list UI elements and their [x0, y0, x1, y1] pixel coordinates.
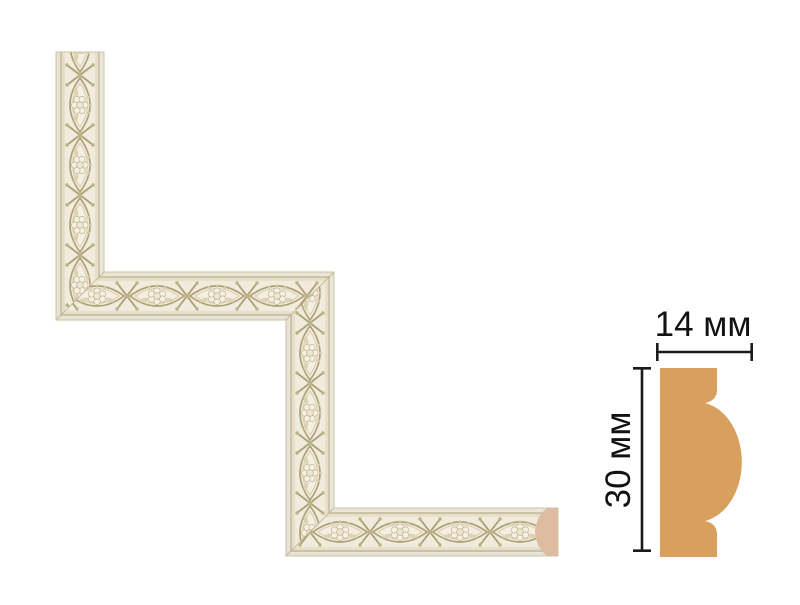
- width-dimension-label: 14 мм: [650, 306, 756, 344]
- profile-diagram: [633, 343, 753, 557]
- molding-strip-horizontal-upper: [56, 272, 334, 320]
- product-image: [0, 0, 800, 605]
- page: 14 мм 30 мм: [0, 0, 800, 605]
- molding-strip-vertical-middle: [286, 272, 334, 556]
- height-dimension-label: 30 мм: [600, 399, 638, 521]
- profile-shape: [660, 368, 742, 557]
- molding-sample: [56, 52, 558, 556]
